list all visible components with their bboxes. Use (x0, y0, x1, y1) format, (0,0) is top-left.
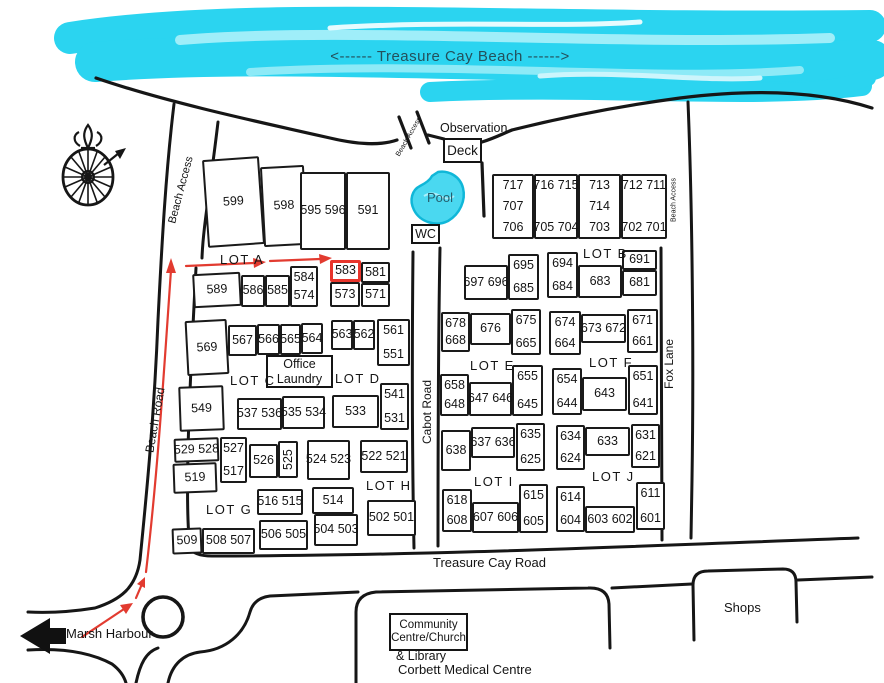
lot-number: 651 (633, 370, 654, 383)
lot-number: 611 (641, 487, 661, 500)
lot-678-668: 678668 (441, 312, 470, 352)
lot-group-label-d: LOT D (335, 371, 381, 386)
lot-number: 533 (345, 405, 366, 418)
lot-number: 605 (523, 515, 544, 528)
lot-number: 683 (590, 275, 611, 288)
lot-533: 533 (332, 395, 379, 428)
lot-number: 668 (445, 334, 466, 347)
lot-number: 573 (335, 288, 356, 301)
lot-524-523: 524 523 (307, 440, 350, 480)
lot-671-661: 671661 (627, 309, 658, 353)
lot-585: 585 (265, 275, 290, 307)
lot-654-644: 654644 (552, 368, 582, 415)
lot-658-648: 658648 (440, 374, 469, 416)
lot-number: 618 (447, 494, 468, 507)
lot-number: 664 (555, 337, 576, 350)
lot-697-696: 697 696 (464, 265, 508, 300)
lot-group-label-a: LOT A (220, 252, 264, 267)
lot-631-621: 631621 (631, 424, 660, 468)
lot-529-528: 529 528 (174, 437, 220, 463)
lot-563: 563 (331, 320, 353, 350)
lot-573: 573 (330, 282, 360, 307)
lot-number: 644 (557, 397, 578, 410)
office-laundry-box: OfficeLaundry (266, 355, 333, 388)
lot-number: 717 (503, 179, 524, 192)
lot-number: 517 (223, 465, 244, 478)
lot-number: 641 (633, 397, 654, 410)
lot-number: 702 701 (621, 221, 666, 234)
lot-615-605: 615605 (519, 484, 548, 533)
lot-number: 519 (184, 471, 205, 485)
lot-number: 713 (589, 179, 610, 192)
lot-651-641: 651641 (628, 365, 658, 415)
shops-label: Shops (724, 600, 761, 615)
lot-595-596: 595 596 (300, 172, 346, 250)
lot-number: 645 (517, 398, 538, 411)
lot-number: 648 (444, 398, 465, 411)
lot-number: 541 (384, 388, 405, 401)
lot-number: 525 (281, 449, 294, 470)
lot-number: 526 (253, 454, 274, 467)
lot-638: 638 (441, 430, 471, 471)
lot-599: 599 (202, 156, 265, 248)
lot-519: 519 (172, 462, 217, 494)
lot-514: 514 (312, 487, 354, 514)
lot-643: 643 (582, 377, 627, 411)
lot-number: 674 (555, 316, 576, 329)
lot-number: 634 (560, 430, 581, 443)
lot-number: 524 523 (306, 453, 351, 466)
lot-675-665: 675665 (511, 309, 541, 355)
lot-584-574: 584574 (290, 266, 318, 307)
lot-603-602: 603 602 (585, 506, 635, 533)
lot-566: 566 (257, 324, 280, 355)
community-centre-label: Community (399, 619, 457, 632)
lot-number: 527 (223, 442, 244, 455)
lot-number: 509 (176, 534, 197, 548)
lot-number: 563 (332, 328, 353, 341)
wc-box: WC (411, 224, 440, 244)
lot-516-515: 516 515 (257, 489, 303, 515)
lot-number: 714 (589, 200, 610, 213)
lot-number: 655 (517, 370, 538, 383)
lot-number: 595 596 (300, 204, 345, 217)
lot-number: 654 (557, 373, 578, 386)
lot-number: 586 (243, 284, 264, 297)
lot-number: 638 (446, 444, 467, 457)
lot-527-517: 527517 (220, 437, 247, 483)
lot-506-505: 506 505 (259, 520, 308, 550)
lot-565: 565 (280, 324, 301, 355)
lot-group-label-h: LOT H (366, 478, 412, 493)
lot-number: 643 (594, 387, 615, 400)
beach-title: <------ Treasure Cay Beach ------> (310, 48, 590, 65)
lot-508-507: 508 507 (202, 528, 255, 554)
lot-number: 508 507 (206, 534, 251, 547)
lot-637-636: 637 636 (471, 427, 515, 458)
lot-number: 706 (503, 221, 524, 234)
lot-633: 633 (585, 427, 630, 456)
lot-group-label-j: LOT J (592, 469, 635, 484)
lot-674-664: 674664 (549, 311, 581, 355)
lot-number: 637 636 (470, 436, 515, 449)
lot-number: 531 (384, 412, 405, 425)
lot-number: 589 (206, 283, 228, 297)
lot-655-645: 655645 (512, 365, 543, 416)
lot-number: 665 (516, 337, 537, 350)
lot-561-551: 561551 (377, 319, 410, 366)
lot-635-625: 635625 (516, 423, 545, 471)
lot-614-604: 614604 (556, 486, 585, 532)
lot-549: 549 (178, 385, 225, 432)
lot-number: 569 (196, 340, 218, 354)
lot-712-711-702-701: 712 711702 701 (621, 174, 667, 239)
lot-number: 673 672 (581, 322, 626, 335)
lot-group-label-e: LOT E (470, 358, 515, 373)
lot-number: 676 (480, 322, 501, 335)
lot-number: 671 (632, 314, 653, 327)
lot-number: 691 (629, 253, 650, 266)
lot-567: 567 (228, 325, 257, 356)
lot-number: 675 (516, 314, 537, 327)
lot-number: 604 (560, 514, 581, 527)
lot-589: 589 (192, 272, 242, 308)
lot-number: 598 (273, 199, 295, 213)
lot-537-536: 537 536 (237, 398, 282, 430)
pool-label: Pool (427, 190, 453, 205)
treasure-cay-map: <------ Treasure Cay Beach ------> Obser… (0, 0, 884, 683)
office-laundry-label: Laundry (277, 372, 322, 386)
lot-571: 571 (361, 283, 390, 307)
lot-number: 551 (383, 348, 404, 361)
lot-number: 549 (191, 402, 212, 416)
lot-number: 703 (589, 221, 610, 234)
lot-694-684: 694684 (547, 252, 578, 298)
deck-label: Deck (447, 143, 478, 159)
lot-676: 676 (470, 313, 511, 345)
lot-number: 658 (444, 379, 465, 392)
lot-581: 581 (361, 262, 390, 283)
treasure-cay-road-label: Treasure Cay Road (433, 555, 546, 570)
lot-number: 584 (294, 271, 315, 284)
lot-number: 583 (335, 264, 356, 277)
lot-number: 661 (632, 335, 653, 348)
lot-number: 502 501 (369, 511, 414, 524)
lot-number: 574 (294, 289, 315, 302)
marsh-harbour-label: Marsh Harbour (66, 626, 153, 641)
lot-number: 614 (560, 491, 581, 504)
community-centre-box: CommunityCentre/Church (389, 613, 468, 651)
lot-number: 694 (552, 257, 573, 270)
compass-ne-pointer (104, 148, 126, 165)
lot-number: 678 (445, 317, 466, 330)
lot-number: 607 606 (473, 511, 518, 524)
lot-526: 526 (249, 444, 278, 478)
observation-label: Observation (440, 121, 507, 135)
lot-522-521: 522 521 (360, 440, 408, 473)
lot-673-672: 673 672 (581, 314, 626, 343)
lot-number: 514 (323, 494, 344, 507)
lot-number: 624 (560, 452, 581, 465)
lot-607-606: 607 606 (472, 502, 519, 533)
lot-618-608: 618608 (442, 489, 472, 532)
lot-695-685: 695685 (508, 254, 539, 300)
lot-number: 564 (302, 332, 323, 345)
deck-box: Deck (443, 138, 482, 163)
community-centre-label: Centre/Church (391, 632, 466, 645)
lot-number: 625 (520, 453, 541, 466)
lot-564: 564 (301, 323, 323, 354)
lot-number: 535 534 (281, 406, 326, 419)
lot-535-534: 535 534 (282, 396, 325, 429)
lot-number: 537 536 (237, 407, 282, 420)
lot-number: 599 (223, 195, 245, 210)
lot-number: 562 (354, 328, 375, 341)
lot-number: 591 (358, 204, 379, 217)
lot-502-501: 502 501 (367, 500, 416, 536)
lot-number: 571 (365, 288, 386, 301)
lot-716-715-705-704: 716 715705 704 (534, 174, 578, 239)
lot-504-503: 504 503 (314, 514, 358, 546)
lot-717-707-706: 717707706 (492, 174, 534, 239)
corbett-medical-label: Corbett Medical Centre (398, 662, 532, 677)
lot-number: 608 (447, 514, 468, 527)
road-label-beach-access: Beach Access (671, 178, 678, 222)
lot-number: 621 (635, 450, 656, 463)
lot-number: 529 528 (174, 443, 220, 458)
lot-562: 562 (353, 320, 375, 350)
lot-number: 561 (383, 324, 404, 337)
lot-number: 707 (503, 200, 524, 213)
lot-525: 525 (278, 441, 298, 478)
compass-north-fleur (75, 125, 102, 148)
lot-number: 567 (232, 334, 253, 347)
wc-label: WC (415, 227, 436, 241)
lot-number: 633 (597, 435, 618, 448)
lot-number: 695 (513, 259, 534, 272)
lot-647-646: 647 646 (469, 382, 512, 416)
lot-number: 685 (513, 282, 534, 295)
lot-number: 716 715 (533, 179, 578, 192)
lot-591: 591 (346, 172, 390, 250)
lot-569: 569 (185, 319, 230, 376)
compass-icon (63, 125, 126, 205)
lot-number: 697 696 (463, 276, 508, 289)
lot-number: 635 (520, 428, 541, 441)
lot-number: 585 (267, 284, 288, 297)
lot-group-label-b: LOT B (583, 246, 628, 261)
lot-group-label-i: LOT I (474, 474, 514, 489)
lot-586: 586 (241, 275, 265, 307)
lot-541-531: 541531 (380, 383, 409, 430)
lot-number: 631 (635, 429, 656, 442)
lot-713-714-703: 713714703 (578, 174, 621, 239)
lot-number: 647 646 (468, 392, 513, 405)
lot-681: 681 (622, 270, 657, 296)
lot-number: 601 (640, 512, 661, 525)
lot-number: 516 515 (257, 495, 302, 508)
lot-number: 603 602 (587, 513, 632, 526)
lot-number: 615 (523, 489, 544, 502)
lot-number: 681 (629, 276, 650, 289)
lot-number: 506 505 (261, 528, 306, 541)
road-label-fox-lane: Fox Lane (662, 339, 676, 389)
lot-number: 581 (365, 266, 386, 279)
lot-number: 684 (552, 280, 573, 293)
office-laundry-label: Office (283, 357, 315, 371)
lot-number: 712 711 (622, 179, 666, 192)
lot-611-601: 611601 (636, 482, 665, 530)
lot-683: 683 (578, 265, 622, 298)
lot-583: 583 (330, 260, 361, 282)
library-label: & Library (396, 649, 446, 663)
lot-number: 565 (280, 333, 301, 346)
lot-number: 522 521 (361, 450, 406, 463)
lot-group-label-f: LOT F (589, 355, 633, 370)
lot-634-624: 634624 (556, 425, 585, 470)
road-label-cabot-road: Cabot Road (420, 380, 434, 444)
lot-group-label-c: LOT C (230, 373, 276, 388)
lot-group-label-g: LOT G (206, 502, 252, 517)
lot-509: 509 (172, 527, 203, 554)
lot-number: 566 (258, 333, 279, 346)
lot-number: 504 503 (313, 523, 358, 536)
lot-number: 705 704 (533, 221, 578, 234)
